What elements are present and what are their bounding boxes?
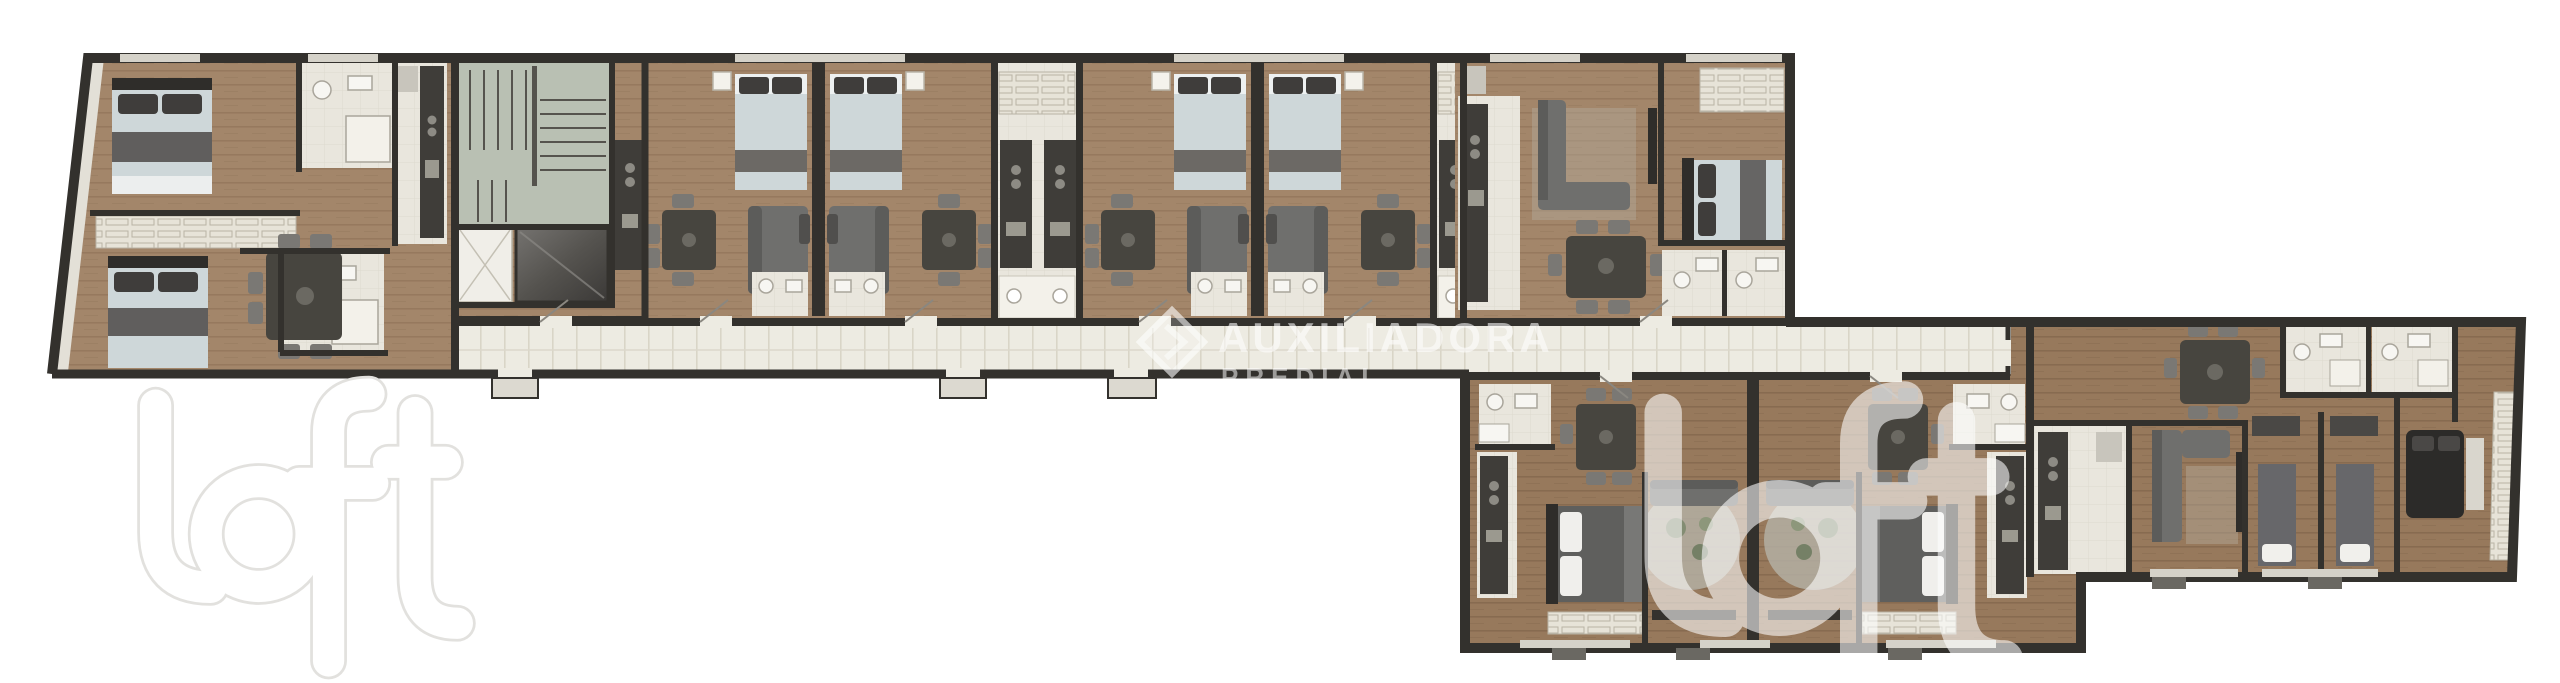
tv-console-icon bbox=[1648, 108, 1657, 184]
loft-logo-watermark bbox=[156, 394, 458, 661]
double-bed-icon bbox=[1682, 158, 1782, 242]
kitchen-counter-icon bbox=[2034, 426, 2130, 574]
bathroom-icon bbox=[2284, 326, 2366, 392]
kitchen-counter-icon bbox=[395, 62, 447, 244]
floor-plan-svg: AUXILIADORA PREDIAL bbox=[0, 0, 2560, 683]
bathroom-icon bbox=[302, 62, 396, 168]
double-bed-icon bbox=[2406, 430, 2484, 518]
apartment-upper-right bbox=[1455, 58, 1786, 322]
double-bed-icon bbox=[112, 78, 212, 194]
kitchen-counter-icon bbox=[615, 140, 645, 270]
bathroom-icon bbox=[1662, 250, 1786, 316]
rug-icon bbox=[2186, 466, 2238, 544]
bathroom-icon bbox=[2372, 326, 2454, 392]
agency-watermark-line1: AUXILIADORA bbox=[1218, 314, 1554, 361]
wardrobe-icon bbox=[1700, 68, 1784, 112]
wardrobe-icon bbox=[96, 216, 296, 248]
double-bed-icon bbox=[108, 256, 208, 368]
agency-watermark-line2: PREDIAL bbox=[1221, 362, 1384, 392]
kitchen-counter-icon bbox=[1458, 66, 1520, 310]
floor-plan-image: AUXILIADORA PREDIAL bbox=[0, 0, 2560, 683]
